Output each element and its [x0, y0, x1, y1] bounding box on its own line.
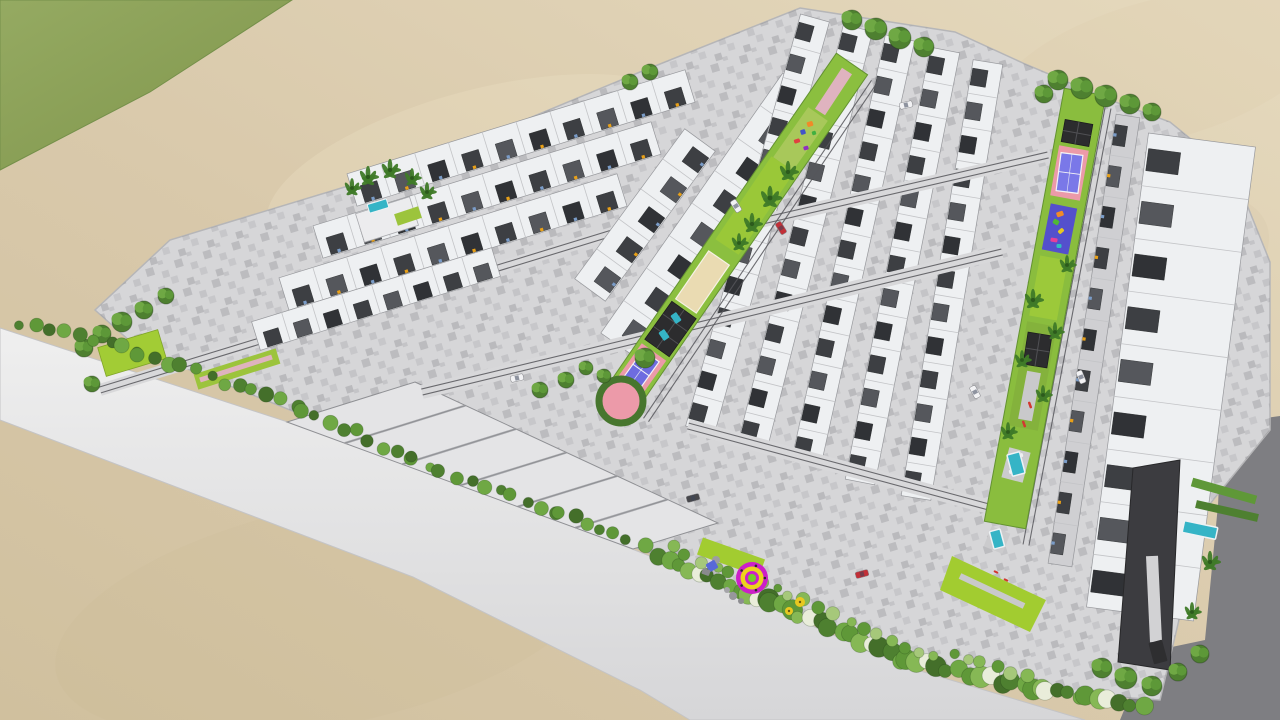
aerial-render-figure	[0, 0, 1280, 720]
aerial-render	[0, 0, 1280, 720]
right-padel-court	[1056, 153, 1083, 194]
screenshot-stage	[0, 0, 1280, 720]
right-garden-pergola	[1023, 332, 1052, 368]
spiral-play-feature	[736, 562, 768, 594]
right-pergola-top	[1061, 120, 1093, 147]
scene-layers	[0, 0, 1280, 720]
